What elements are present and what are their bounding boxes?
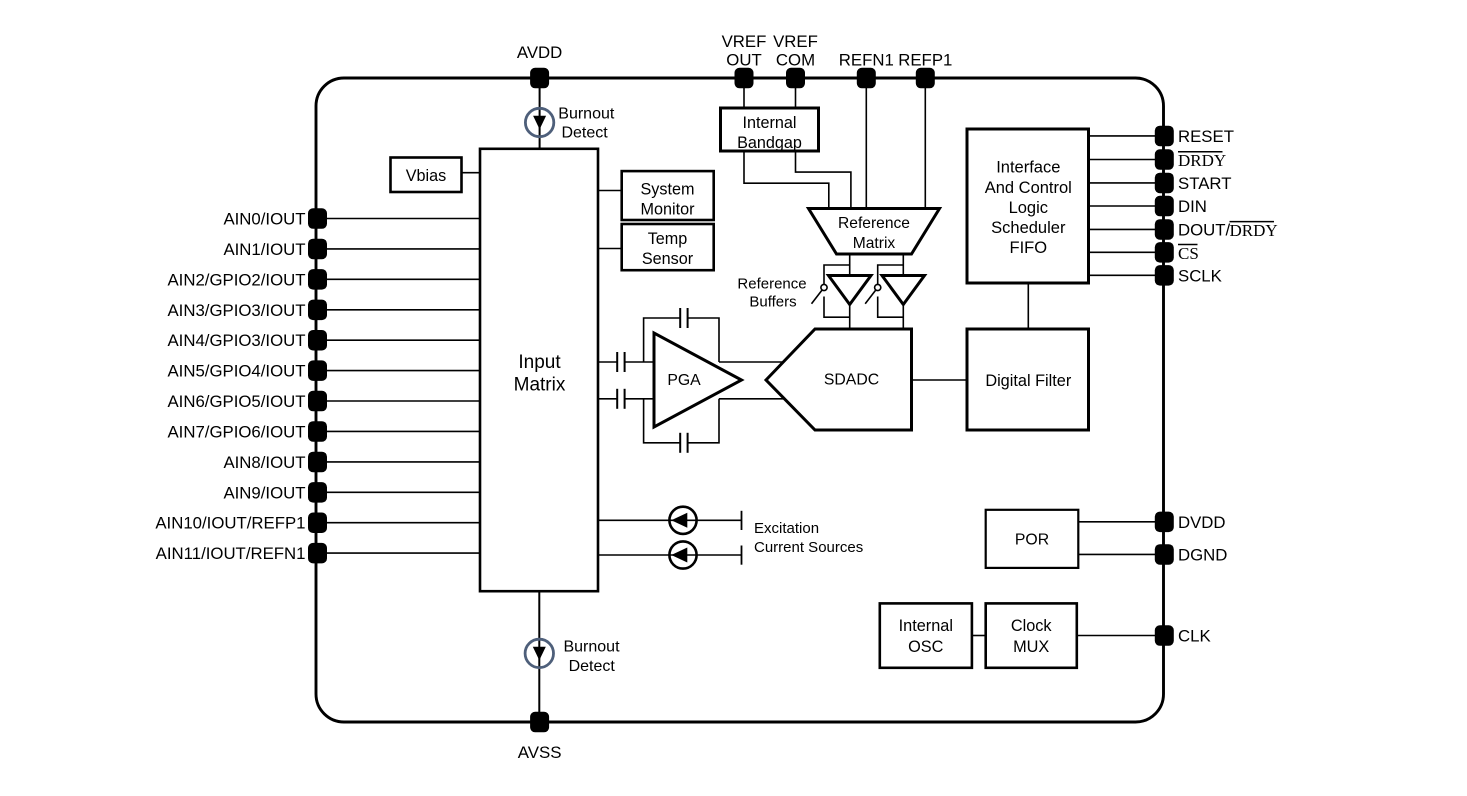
svg-text:System: System (641, 181, 695, 199)
svg-text:RESET: RESET (1178, 127, 1234, 146)
svg-text:DGND: DGND (1178, 545, 1227, 564)
svg-text:Detect: Detect (569, 658, 616, 675)
svg-text:Reference: Reference (737, 275, 806, 292)
svg-text:AIN2/GPIO2/IOUT: AIN2/GPIO2/IOUT (167, 270, 305, 289)
svg-text:AIN3/GPIO3/IOUT: AIN3/GPIO3/IOUT (167, 301, 305, 320)
svg-text:AVDD: AVDD (517, 43, 562, 62)
svg-text:Scheduler: Scheduler (991, 219, 1066, 237)
svg-text:Internal: Internal (899, 617, 953, 635)
svg-text:AIN0/IOUT: AIN0/IOUT (223, 210, 305, 229)
svg-text:CLK: CLK (1178, 627, 1211, 646)
svg-text:DVDD: DVDD (1178, 513, 1226, 532)
svg-text:CS: CS (1178, 244, 1199, 263)
svg-text:DRDY: DRDY (1178, 151, 1226, 170)
svg-text:AIN7/GPIO6/IOUT: AIN7/GPIO6/IOUT (167, 423, 305, 442)
svg-text:DRDY: DRDY (1230, 221, 1278, 240)
svg-text:COM: COM (776, 51, 815, 70)
svg-text:Vbias: Vbias (406, 167, 447, 185)
svg-text:OUT: OUT (726, 51, 761, 70)
svg-text:Excitation: Excitation (754, 520, 819, 537)
svg-text:MUX: MUX (1013, 638, 1049, 656)
svg-text:AIN10/IOUT/REFP1: AIN10/IOUT/REFP1 (155, 514, 305, 533)
svg-text:DOUT/: DOUT/ (1178, 220, 1231, 239)
svg-text:VREF: VREF (773, 32, 818, 51)
svg-text:SDADC: SDADC (824, 372, 879, 389)
svg-text:AVSS: AVSS (518, 743, 562, 762)
svg-text:FIFO: FIFO (1010, 239, 1048, 257)
svg-text:Logic: Logic (1009, 199, 1048, 217)
svg-text:Current Sources: Current Sources (754, 539, 863, 556)
svg-text:Monitor: Monitor (641, 201, 696, 219)
svg-text:AIN9/IOUT: AIN9/IOUT (223, 483, 305, 502)
svg-text:AIN5/GPIO4/IOUT: AIN5/GPIO4/IOUT (167, 362, 305, 381)
svg-text:AIN4/GPIO3/IOUT: AIN4/GPIO3/IOUT (167, 331, 305, 350)
svg-text:Reference: Reference (838, 215, 910, 232)
svg-text:Detect: Detect (561, 124, 608, 141)
svg-text:Digital Filter: Digital Filter (985, 372, 1072, 390)
svg-text:DIN: DIN (1178, 197, 1207, 216)
svg-text:Buffers: Buffers (749, 293, 796, 310)
svg-text:Interface: Interface (996, 159, 1060, 177)
svg-text:Sensor: Sensor (642, 250, 694, 268)
svg-text:START: START (1178, 174, 1231, 193)
svg-text:VREF: VREF (722, 32, 767, 51)
svg-text:And Control: And Control (985, 179, 1072, 197)
svg-text:AIN8/IOUT: AIN8/IOUT (223, 453, 305, 472)
svg-text:PGA: PGA (667, 372, 701, 389)
svg-text:Input: Input (518, 352, 561, 373)
svg-text:Bandgap: Bandgap (737, 134, 802, 152)
svg-text:OSC: OSC (908, 638, 944, 656)
svg-text:REFP1: REFP1 (898, 51, 952, 70)
svg-text:POR: POR (1015, 532, 1049, 549)
svg-text:Clock: Clock (1011, 617, 1053, 635)
svg-text:Internal: Internal (743, 114, 797, 132)
svg-text:Burnout: Burnout (563, 638, 620, 655)
svg-text:Temp: Temp (648, 230, 688, 248)
svg-text:SCLK: SCLK (1178, 266, 1222, 285)
svg-text:Matrix: Matrix (514, 374, 566, 395)
svg-text:REFN1: REFN1 (839, 51, 894, 70)
svg-text:Burnout: Burnout (558, 106, 615, 123)
svg-text:AIN1/IOUT: AIN1/IOUT (223, 240, 305, 259)
svg-text:AIN11/IOUT/REFN1: AIN11/IOUT/REFN1 (156, 544, 306, 563)
svg-text:AIN6/GPIO5/IOUT: AIN6/GPIO5/IOUT (167, 392, 305, 411)
svg-text:Matrix: Matrix (853, 235, 896, 252)
